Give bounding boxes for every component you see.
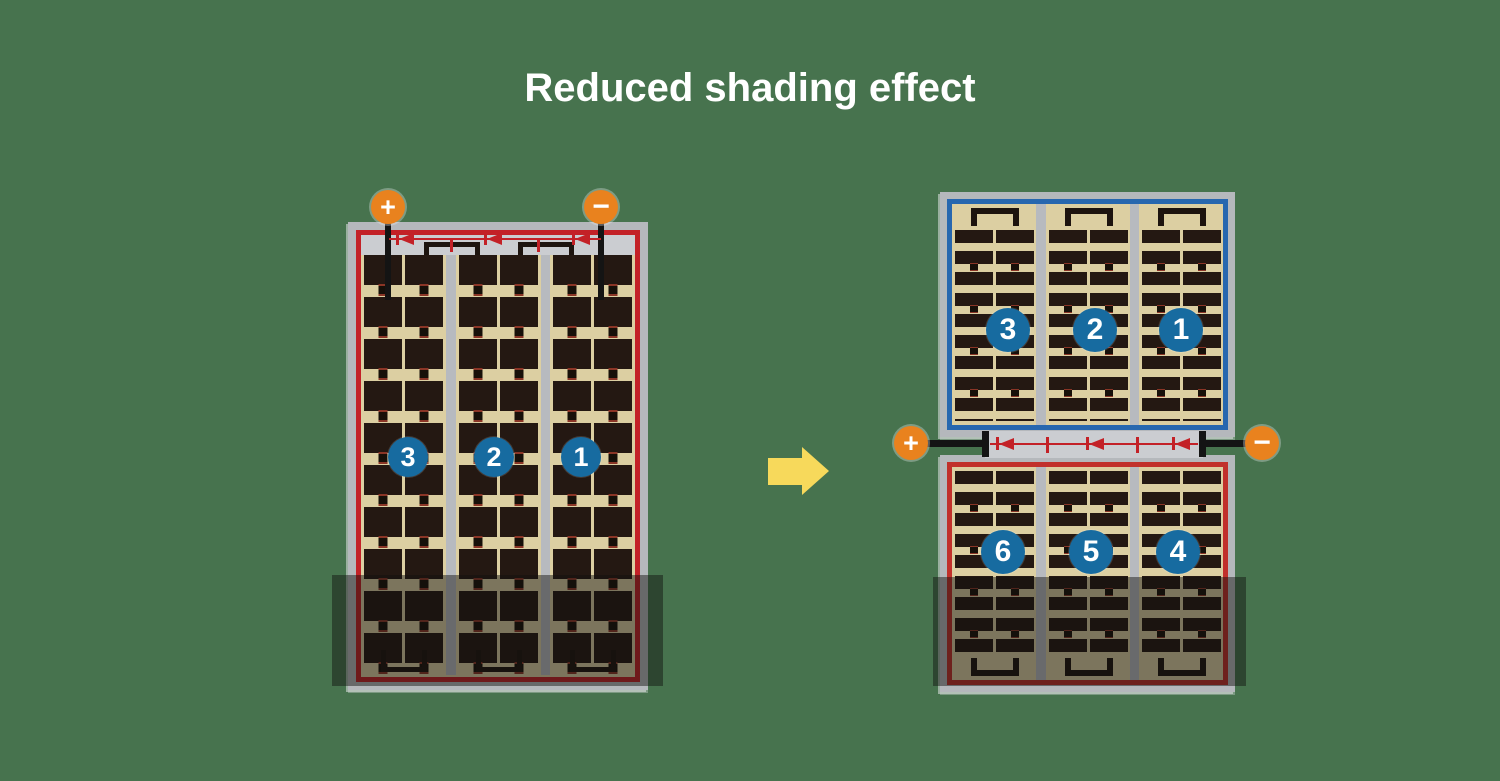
string-number-badge: 2: [474, 437, 514, 477]
bypass-diode-icon: [484, 231, 502, 246]
busbar-bridge: [518, 242, 574, 255]
transform-arrow-icon: [768, 458, 802, 485]
busbar-bridge: [971, 208, 1019, 226]
string-number-badge: 3: [388, 437, 428, 477]
negative-terminal: −: [584, 190, 618, 224]
diode-bus-tap: [537, 238, 540, 252]
string-number-badge: 1: [561, 437, 601, 477]
bypass-diode-icon: [996, 436, 1014, 451]
positive-terminal: +: [371, 190, 405, 224]
string-number-badge: 1: [1159, 308, 1203, 352]
diode-bus-tap: [1046, 437, 1049, 453]
shading-overlay: [933, 577, 1246, 686]
busbar-bridge: [1158, 208, 1206, 226]
busbar-bridge: [1065, 208, 1113, 226]
bus-bracket: [982, 431, 989, 457]
infographic-canvas: Reduced shading effect: [0, 0, 1500, 781]
bypass-diode-icon: [1086, 436, 1104, 451]
transform-arrow-icon: [802, 447, 829, 495]
bypass-diode-icon: [572, 231, 590, 246]
string-number-badge: 6: [981, 530, 1025, 574]
page-title: Reduced shading effect: [0, 66, 1500, 111]
negative-terminal: −: [1245, 426, 1279, 460]
bus-bracket: [1199, 431, 1206, 457]
string-separator: [1130, 204, 1140, 425]
string-number-badge: 2: [1073, 308, 1117, 352]
string-number-badge: 3: [986, 308, 1030, 352]
bypass-diode-icon: [396, 231, 414, 246]
string-number-badge: 5: [1069, 530, 1113, 574]
shading-overlay: [332, 575, 663, 686]
string-separator: [1036, 204, 1046, 425]
diode-bus-tap: [450, 238, 453, 252]
bypass-diode-icon: [1172, 436, 1190, 451]
diode-bus-tap: [1136, 437, 1139, 453]
string-number-badge: 4: [1156, 530, 1200, 574]
positive-terminal: +: [894, 426, 928, 460]
